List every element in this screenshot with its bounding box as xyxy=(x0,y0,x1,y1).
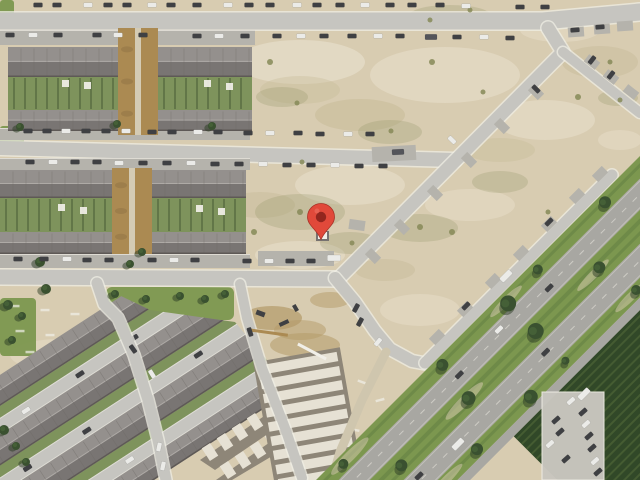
satellite-map-canvas[interactable] xyxy=(0,0,640,480)
parking-lot xyxy=(542,387,604,480)
satellite-map-view xyxy=(0,0,640,480)
